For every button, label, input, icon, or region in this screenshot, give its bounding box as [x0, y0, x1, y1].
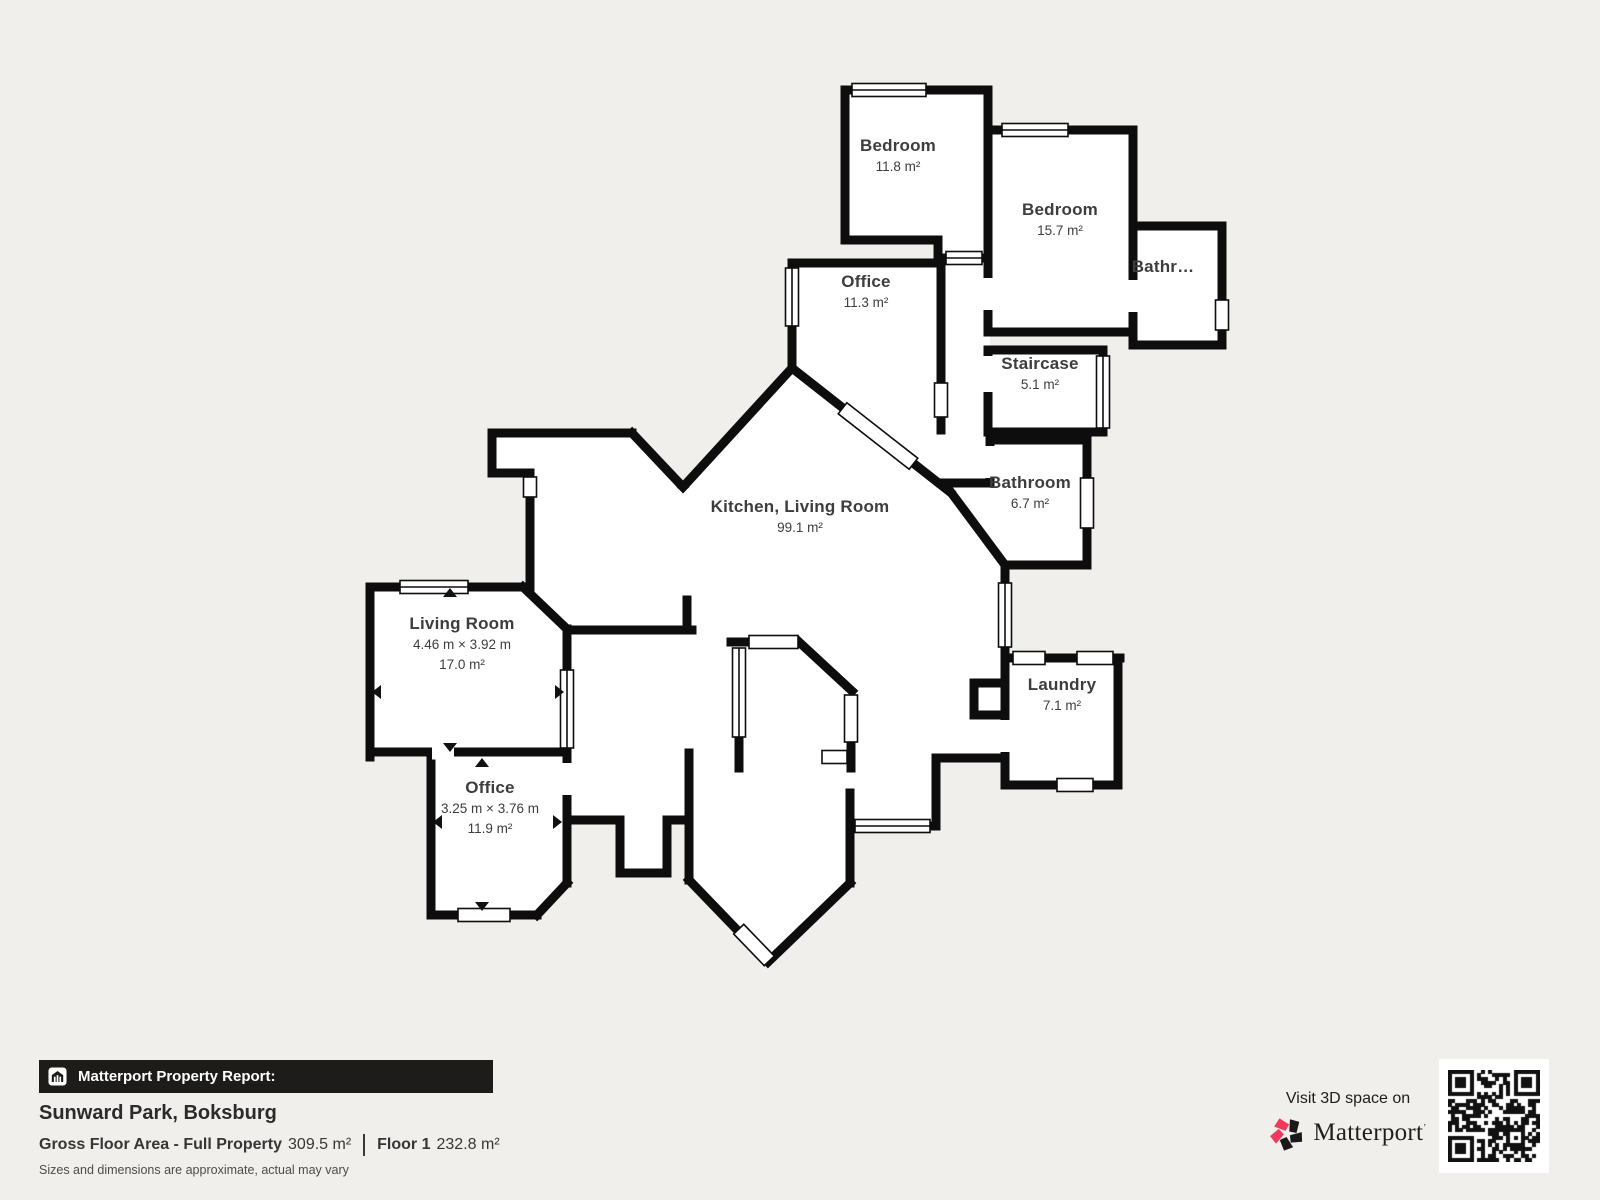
gfa-label: Gross Floor Area - Full Property — [39, 1136, 282, 1154]
divider — [363, 1134, 365, 1156]
room-label-office-1: Office 11.3 m² — [841, 271, 890, 313]
room-label-staircase: Staircase 5.1 m² — [1001, 353, 1078, 395]
report-title: Matterport Property Report: — [78, 1068, 276, 1085]
matterport-wordmark: Matterport’ — [1313, 1119, 1426, 1147]
room-label-bedroom-1: Bedroom 11.8 m² — [860, 135, 936, 177]
area-summary: Gross Floor Area - Full Property 309.5 m… — [39, 1134, 500, 1156]
gfa-value: 309.5 m² — [288, 1136, 351, 1154]
door-office-2 — [560, 763, 575, 795]
floor-plan — [0, 0, 1600, 1200]
room-label-bathroom-67: Bathroom 6.7 m² — [989, 472, 1071, 514]
door-staircase — [981, 356, 996, 392]
matterport-pinwheel-icon — [1269, 1115, 1305, 1151]
room-label-bathroom-top: Bathr… — [1132, 256, 1195, 278]
property-name: Sunward Park, Boksburg — [39, 1102, 277, 1125]
disclaimer-text: Sizes and dimensions are approximate, ac… — [39, 1163, 349, 1177]
door-bathroom-top — [1126, 280, 1141, 312]
room-label-bedroom-2: Bedroom 15.7 m² — [1022, 199, 1098, 241]
room-label-laundry: Laundry 7.1 m² — [1028, 674, 1096, 716]
visit-3d-block: Visit 3D space on Matterport’ — [1248, 1090, 1448, 1151]
floor-value: 232.8 m² — [437, 1136, 500, 1154]
report-title-bar: Matterport Property Report: — [39, 1060, 493, 1093]
house-icon — [48, 1067, 67, 1086]
qr-code-icon — [1448, 1070, 1540, 1162]
floor-label: Floor 1 — [377, 1136, 430, 1154]
door-laundry — [998, 720, 1013, 752]
room-label-office-2: Office 3.25 m × 3.76 m 11.9 m² — [441, 777, 539, 840]
door-bedroom2 — [981, 278, 996, 310]
matterport-logo: Matterport’ — [1248, 1115, 1448, 1151]
property-report-page: Bedroom 11.8 m² Bedroom 15.7 m² Bathr… O… — [0, 0, 1600, 1200]
room-label-kitchen-living: Kitchen, Living Room 99.1 m² — [711, 496, 890, 538]
room-label-living-room: Living Room 4.46 m × 3.92 m 17.0 m² — [409, 613, 514, 676]
qr-code — [1439, 1059, 1549, 1173]
visit-text: Visit 3D space on — [1248, 1090, 1448, 1108]
